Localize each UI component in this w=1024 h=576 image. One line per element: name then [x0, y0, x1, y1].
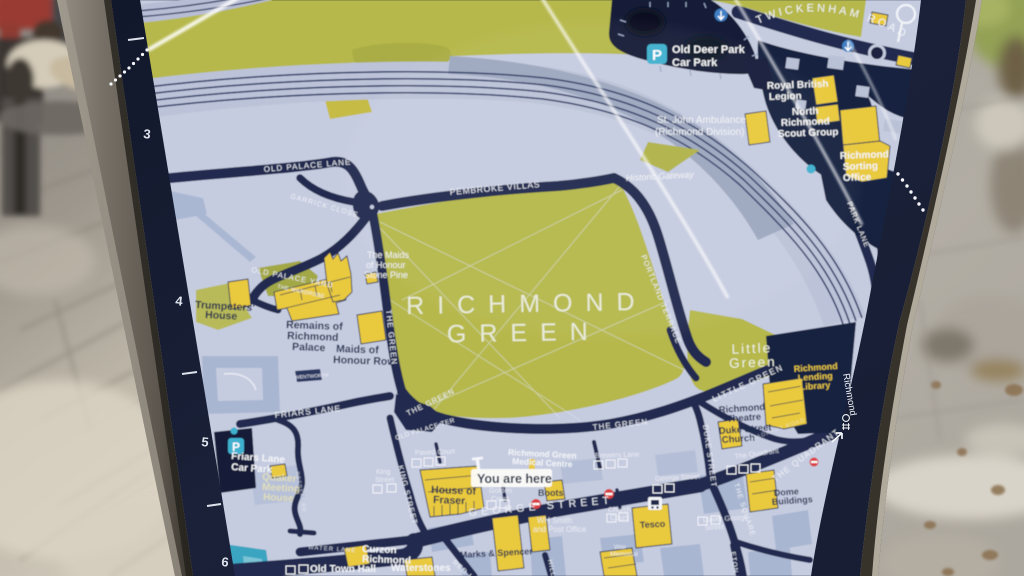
svg-text:Waterstones: Waterstones — [391, 563, 451, 574]
svg-text:Paved Court: Paved Court — [415, 447, 455, 457]
svg-text:and Post Office: and Post Office — [533, 525, 586, 534]
svg-text:Court: Court — [610, 513, 628, 522]
svg-text:Fraser: Fraser — [433, 494, 466, 507]
svg-text:Memorial: Memorial — [610, 551, 638, 558]
svg-text:Tesco: Tesco — [640, 519, 666, 530]
svg-text:Street: Street — [705, 522, 725, 532]
svg-text:House: House — [263, 492, 295, 505]
svg-text:WH Smith: WH Smith — [537, 516, 572, 525]
svg-text:Old Town Hall: Old Town Hall — [310, 564, 376, 575]
svg-text:Court: Court — [491, 494, 509, 503]
svg-text:House: House — [205, 309, 238, 323]
svg-text:Street: Street — [375, 475, 394, 484]
svg-text:Brewers Lane: Brewers Lane — [595, 449, 640, 460]
svg-text:Honour Row: Honour Row — [333, 354, 397, 368]
svg-text:Library: Library — [799, 380, 830, 392]
svg-text:Palace: Palace — [292, 341, 326, 354]
svg-text:You are here: You are here — [477, 472, 552, 486]
svg-text:Boots: Boots — [538, 488, 564, 498]
svg-text:War: War — [614, 544, 627, 551]
